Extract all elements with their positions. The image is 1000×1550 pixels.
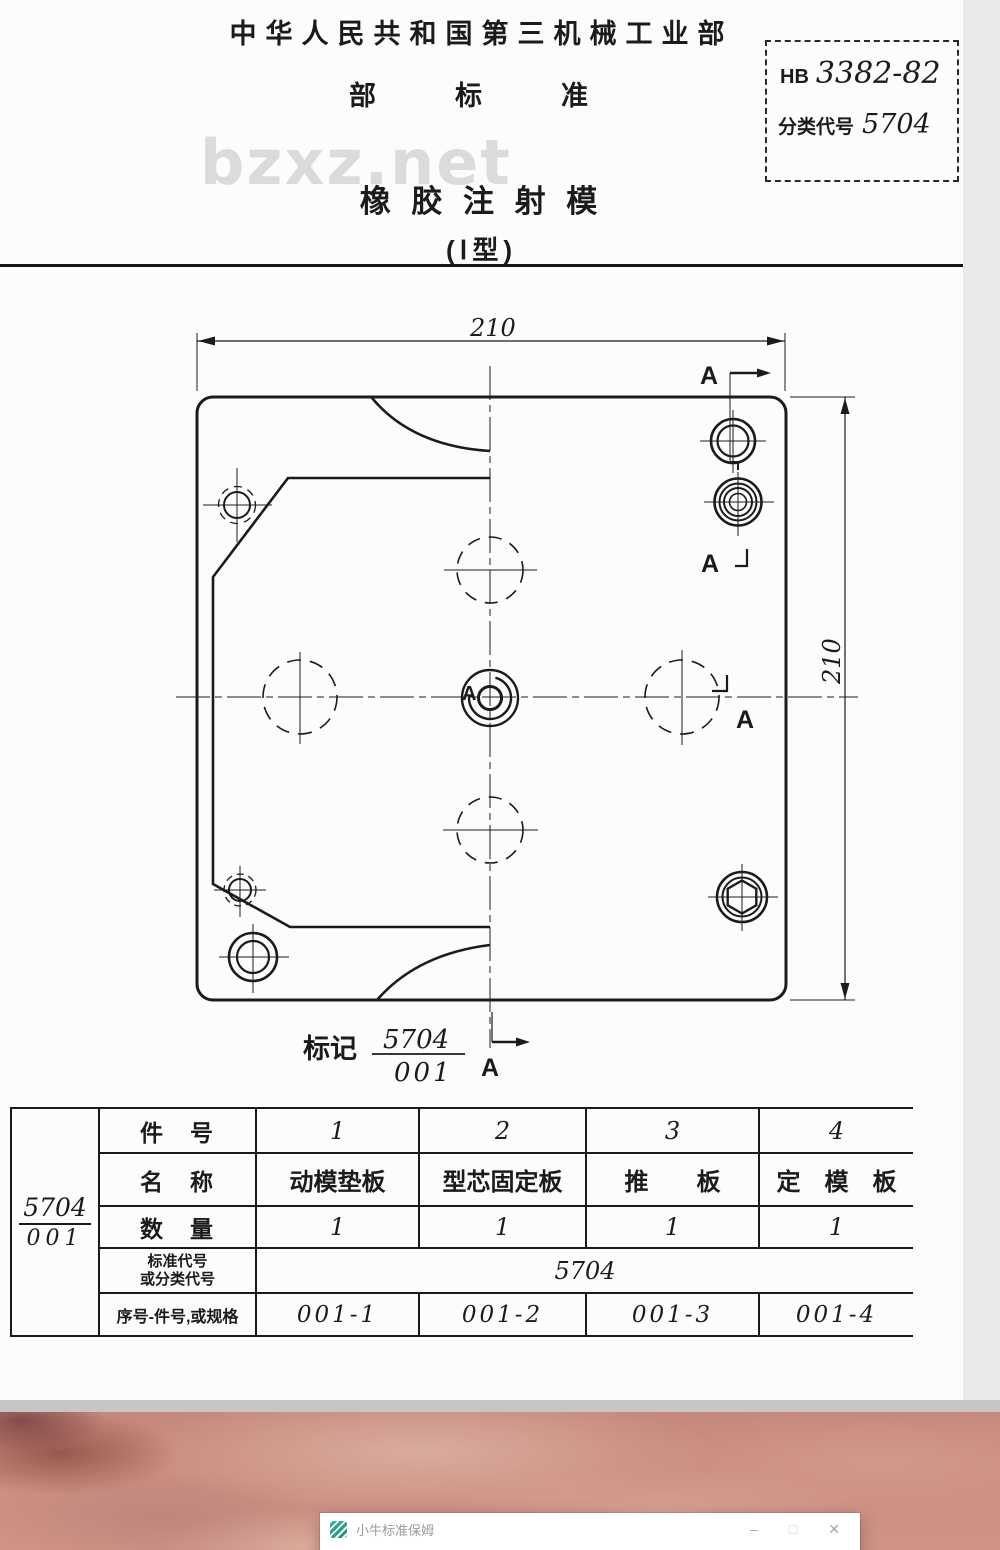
parts-table: 5704 001 件 号 1 2 3 4 名 称 动模垫板 型芯固定板 推 板 … bbox=[10, 1107, 913, 1337]
minimize-icon[interactable]: – bbox=[750, 1522, 758, 1536]
part-name-cell: 推 板 bbox=[586, 1153, 759, 1206]
inner-contour bbox=[213, 398, 490, 1000]
row-header-name: 名 称 bbox=[99, 1153, 256, 1206]
drawing-set-code: 5704 001 bbox=[11, 1108, 99, 1336]
part-no-cell: 3 bbox=[586, 1108, 759, 1153]
screw-top-right bbox=[704, 472, 774, 536]
part-spec-cell: 001-3 bbox=[586, 1293, 759, 1336]
std-code-header-line1: 标准代号 bbox=[147, 1253, 207, 1270]
section-letter-upper: A bbox=[701, 550, 719, 578]
section-letter-middle: A bbox=[736, 706, 754, 734]
row-header-std-code: 标准代号 或分类代号 bbox=[99, 1248, 256, 1293]
row-header-part-no: 件 号 bbox=[99, 1108, 256, 1153]
hex-socket-screw-bottom-right bbox=[708, 864, 778, 931]
scanned-standard-page: bzxz.net 中华人民共和国第三机械工业部 部 标 准 HB 3382-82… bbox=[0, 0, 1000, 1400]
part-no-cell: 1 bbox=[256, 1108, 419, 1153]
hole-bottom-left-large bbox=[219, 924, 289, 993]
part-no-cell: 2 bbox=[419, 1108, 586, 1153]
part-spec-cell: 001-1 bbox=[256, 1293, 419, 1336]
part-name-cell: 动模垫板 bbox=[256, 1153, 419, 1206]
part-qty-cell: 1 bbox=[256, 1206, 419, 1248]
row-header-qty: 数 量 bbox=[99, 1206, 256, 1248]
table-row: 名 称 动模垫板 型芯固定板 推 板 定 模 板 bbox=[11, 1153, 913, 1206]
part-qty-cell: 1 bbox=[586, 1206, 759, 1248]
set-code-numerator: 5704 bbox=[19, 1193, 91, 1225]
screen: bzxz.net 中华人民共和国第三机械工业部 部 标 准 HB 3382-82… bbox=[0, 0, 1000, 1550]
set-code-denominator: 001 bbox=[19, 1225, 91, 1251]
part-no-cell: 4 bbox=[759, 1108, 913, 1153]
app-window: 小牛标准保姆 – □ ✕ 菜单 bbox=[320, 1513, 860, 1550]
part-spec-cell: 001-2 bbox=[419, 1293, 586, 1336]
table-row: 序号-件号,或规格 001-1 001-2 001-3 001-4 bbox=[11, 1293, 913, 1336]
hole-left-middle bbox=[263, 652, 337, 744]
row-header-spec: 序号-件号,或规格 bbox=[99, 1293, 256, 1336]
viewer-divider-band bbox=[0, 1400, 1000, 1412]
center-hole-letter: A bbox=[462, 683, 476, 705]
part-name-cell: 定 模 板 bbox=[759, 1153, 913, 1206]
mark-code-numerator: 5704 bbox=[383, 1025, 449, 1055]
std-code-header-line2: 或分类代号 bbox=[140, 1271, 215, 1288]
hole-top-left bbox=[203, 468, 272, 542]
dim-top-value: 210 bbox=[469, 314, 516, 342]
section-letter-top: A bbox=[700, 362, 718, 390]
section-mark-upper-hook bbox=[735, 549, 747, 566]
app-icon bbox=[330, 1521, 347, 1538]
window-titlebar[interactable]: 小牛标准保姆 – □ ✕ bbox=[320, 1513, 860, 1545]
std-code-cell: 5704 bbox=[256, 1248, 913, 1293]
mark-label: 标记 bbox=[303, 1034, 357, 1064]
maximize-icon[interactable]: □ bbox=[789, 1522, 797, 1536]
section-mark-bottom bbox=[492, 1012, 530, 1047]
technical-drawing: 210 210 A A A A A 标记 5704 001 bbox=[0, 0, 1000, 1100]
dim-right-value: 210 bbox=[818, 638, 846, 685]
window-controls: – □ ✕ bbox=[750, 1522, 848, 1536]
plate-outline bbox=[197, 397, 786, 1000]
table-row: 标准代号 或分类代号 5704 bbox=[11, 1248, 913, 1293]
section-letter-bottom: A bbox=[481, 1054, 499, 1082]
window-menubar: 菜单 bbox=[320, 1545, 860, 1550]
close-icon[interactable]: ✕ bbox=[828, 1522, 840, 1536]
table-row: 5704 001 件 号 1 2 3 4 bbox=[11, 1108, 913, 1153]
dimension-right bbox=[790, 397, 855, 1000]
hole-top-right-ring bbox=[700, 410, 766, 473]
table-row: 数 量 1 1 1 1 bbox=[11, 1206, 913, 1248]
part-qty-cell: 1 bbox=[419, 1206, 586, 1248]
part-spec-cell: 001-4 bbox=[759, 1293, 913, 1336]
mark-code-denominator: 001 bbox=[394, 1058, 453, 1088]
part-name-cell: 型芯固定板 bbox=[419, 1153, 586, 1206]
window-title: 小牛标准保姆 bbox=[356, 1520, 434, 1539]
part-qty-cell: 1 bbox=[759, 1206, 913, 1248]
